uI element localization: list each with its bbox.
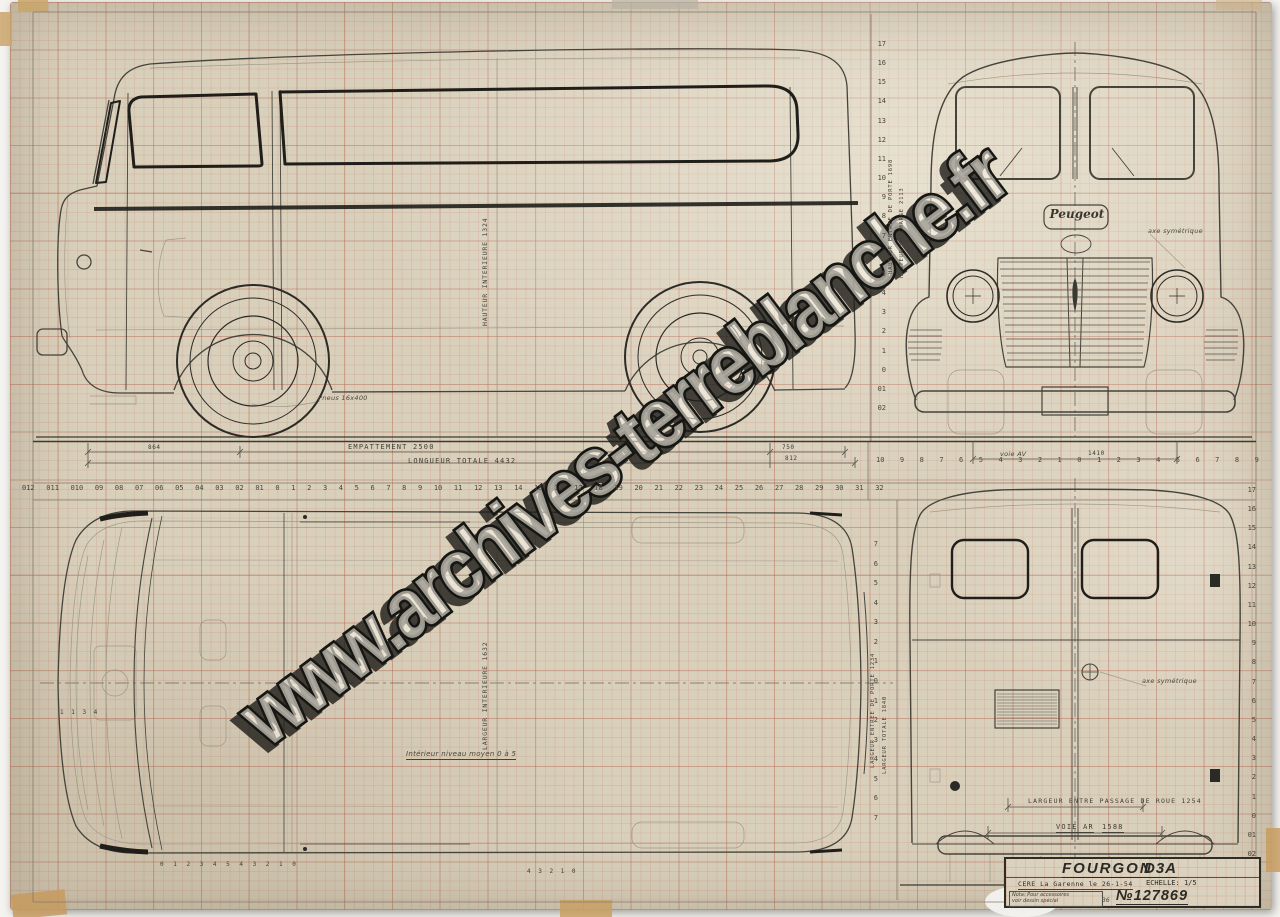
scale-number: 32: [875, 484, 883, 496]
scale-number: 5: [872, 270, 886, 278]
section-marks-b: 4 3 2 1 0: [527, 868, 578, 875]
scale-number: 0: [1242, 812, 1256, 820]
dim-864-label: 864: [148, 444, 161, 451]
scale-number: 03: [215, 484, 223, 496]
scale-number: 1: [291, 484, 295, 496]
scale-number: 0: [275, 484, 279, 496]
scale-number: 1: [1097, 456, 1101, 466]
scale-number: 5: [979, 456, 983, 466]
scale-number: 7: [939, 456, 943, 466]
axe-note-rear: axe symétrique: [1142, 677, 1197, 685]
voie-av-label: voie AV: [1000, 450, 1026, 458]
scale-number: 27: [775, 484, 783, 496]
scale-number: 16: [872, 59, 886, 67]
scale-number: 5: [1176, 456, 1180, 466]
scale-number: 28: [795, 484, 803, 496]
scale-number: 17: [872, 40, 886, 48]
scale-number: 11: [872, 155, 886, 163]
scale-number: 01: [1242, 831, 1256, 839]
scale-number: 16: [1242, 505, 1256, 513]
scale-number: 4: [1242, 735, 1256, 743]
scale-number: 3: [323, 484, 327, 496]
scale-number: 5: [355, 484, 359, 496]
scale-number: 7: [866, 814, 878, 822]
scale-number: 17: [574, 484, 582, 496]
scale-number: 23: [695, 484, 703, 496]
scale-right-columns: 109876543210123456789: [876, 456, 1259, 466]
scale-number: 06: [155, 484, 163, 496]
scale-number: 13: [494, 484, 502, 496]
scale-number: 01: [255, 484, 263, 496]
scale-bottom-rows: 171615141312111098765432100102: [1242, 486, 1256, 858]
scale-number: 2: [872, 327, 886, 335]
scale-number: 25: [735, 484, 743, 496]
drawing-number: №127869: [1116, 888, 1188, 905]
vitrage-note-label: Intérieur niveau moyen 0 à 5: [406, 750, 516, 760]
scale-number: 012: [22, 484, 35, 496]
scale-number: 0: [1077, 456, 1081, 466]
scale-number: 1: [1242, 793, 1256, 801]
scale-number: 17: [1242, 486, 1256, 494]
scale-top-rows: 171615141312111098765432100102: [872, 40, 886, 412]
scale-number: 2: [1117, 456, 1121, 466]
longueur-totale-label: LONGUEUR TOTALE 4432: [408, 457, 516, 465]
scale-number: 8: [920, 456, 924, 466]
scale-number: 6: [370, 484, 374, 496]
largeur-passage-roue-label: LARGEUR ENTRE PASSAGE DE ROUE 1254: [1028, 797, 1202, 805]
scale-number: 11: [454, 484, 462, 496]
tape-top-right: [1216, 0, 1262, 10]
scale-number: 7: [1215, 456, 1219, 466]
scale-number: 29: [815, 484, 823, 496]
scale-number: 6: [1195, 456, 1199, 466]
scale-number: 9: [418, 484, 422, 496]
scale-number: 6: [866, 560, 878, 568]
scale-number: 8: [402, 484, 406, 496]
scale-number: 30: [835, 484, 843, 496]
scale-number: 31: [855, 484, 863, 496]
scale-number: 3: [1136, 456, 1140, 466]
pneus-label: Pneus 16x400: [318, 394, 368, 402]
scale-number: 14: [1242, 543, 1256, 551]
scale-number: 26: [755, 484, 763, 496]
scale-number: 2: [1242, 773, 1256, 781]
scale-number: 9: [1242, 639, 1256, 647]
scale-number: 4: [872, 289, 886, 297]
scale-number: 9: [872, 193, 886, 201]
scale-number: 1: [872, 347, 886, 355]
scale-number: 8: [872, 212, 886, 220]
scale-number: 12: [474, 484, 482, 496]
largeur-entree-porte-label: LARGEUR ENTREE DE PORTE 1234: [870, 653, 876, 768]
scale-number: 2: [307, 484, 311, 496]
scale-number: 12: [872, 136, 886, 144]
scale-number: 4: [1156, 456, 1160, 466]
number-sign: №: [1116, 888, 1134, 904]
scale-number: 3: [1242, 754, 1256, 762]
scale-number: 5: [1242, 716, 1256, 724]
hauteur-entree-porte-label: HAUTEUR ENTREE DE PORTE 1698: [888, 159, 894, 274]
scale-number: 24: [715, 484, 723, 496]
scale-number: 10: [1242, 620, 1256, 628]
scale-note: ECHELLE: 1/5: [1146, 879, 1197, 887]
scale-value: 1/5: [1184, 879, 1197, 887]
scale-number: 01: [872, 385, 886, 393]
scale-number: 5: [866, 775, 878, 783]
hauteur-interieure-label: HAUTEUR INTERIEURE 1324: [481, 218, 489, 326]
title-block-row1: FOURGON D3A: [1006, 859, 1259, 878]
drawing-title: FOURGON: [1062, 860, 1153, 878]
scale-number: 10: [872, 174, 886, 182]
scale-number: 7: [1242, 678, 1256, 686]
voie-ar-value: 1588: [1102, 823, 1124, 833]
scale-number: 6: [1242, 697, 1256, 705]
title-block: FOURGON D3A CERE La Garenne le 26-1-54 E…: [1004, 857, 1261, 908]
scale-number: 7: [872, 232, 886, 240]
tape-bottom-left: [11, 889, 67, 917]
scale-number: 10: [434, 484, 442, 496]
scale-number: 6: [959, 456, 963, 466]
scale-number: 09: [95, 484, 103, 496]
scale-number: 08: [115, 484, 123, 496]
scale-number: 15: [872, 78, 886, 86]
scale-number: 011: [46, 484, 59, 496]
largeur-totale-label: LARGEUR TOTALE 1840: [882, 696, 888, 774]
dim-812-label: 812: [785, 455, 798, 462]
tape-bottom-center: [560, 900, 612, 917]
scale-number: 12: [1242, 582, 1256, 590]
scale-number: 13: [872, 117, 886, 125]
scale-number: 4: [866, 599, 878, 607]
hauteur-en-charge-label: HAUTEUR EN CHARGE 2113: [899, 188, 905, 278]
scale-number: 9: [900, 456, 904, 466]
scale-number: 07: [135, 484, 143, 496]
scale-number: 8: [1242, 658, 1256, 666]
tape-top-center: [612, 0, 698, 9]
scale-number: 13: [1242, 563, 1256, 571]
peugeot-badge-text: Peugeot: [1048, 207, 1106, 221]
voie-av-value: 1410: [1088, 450, 1105, 457]
scale-number: 02: [235, 484, 243, 496]
scale-number: 4: [339, 484, 343, 496]
scale-number: 2: [1038, 456, 1042, 466]
scale-number: 0: [872, 366, 886, 374]
scale-number: 18: [594, 484, 602, 496]
plan-marks-label: 1 1 3 4: [60, 709, 99, 716]
voie-ar-label: VOIE AR: [1056, 823, 1094, 833]
scale-top-columns: 0120110100908070605040302010123456789101…: [22, 484, 884, 496]
nota-line2: voir dessin spécial: [1012, 898, 1058, 904]
scale-number: 14: [514, 484, 522, 496]
tape-left-edge: [0, 12, 12, 46]
dim-750-label: 750: [782, 444, 795, 451]
scale-label: ECHELLE:: [1146, 879, 1180, 887]
axe-note-front: axe symétrique: [1148, 227, 1203, 235]
scale-number: 15: [1242, 524, 1256, 532]
scale-number: 7: [866, 540, 878, 548]
scale-number: 19: [614, 484, 622, 496]
scale-number: 15: [534, 484, 542, 496]
scale-number: 9: [1255, 456, 1259, 466]
largeur-interieure-label: LARGEUR INTERIEURE 1632: [481, 642, 489, 750]
scale-number: 21: [655, 484, 663, 496]
scale-number: 010: [71, 484, 84, 496]
scale-number: 8: [1235, 456, 1239, 466]
number-value: 127869: [1134, 888, 1188, 904]
scale-number: 16: [554, 484, 562, 496]
scale-number: 20: [634, 484, 642, 496]
scale-number: 14: [872, 97, 886, 105]
scale-number: 11: [1242, 601, 1256, 609]
scale-number: 1: [1058, 456, 1062, 466]
scale-number: 7: [386, 484, 390, 496]
number-note: 36: [1102, 897, 1110, 904]
scale-number: 6: [872, 251, 886, 259]
scale-number: 05: [175, 484, 183, 496]
scale-number: 2: [866, 638, 878, 646]
drawing-model: D3A: [1144, 860, 1177, 878]
scale-number: 22: [675, 484, 683, 496]
scale-number: 5: [866, 579, 878, 587]
scale-number: 04: [195, 484, 203, 496]
scale-number: 3: [866, 618, 878, 626]
scale-number: 3: [872, 308, 886, 316]
scale-number: 6: [866, 794, 878, 802]
scale-number: 10: [876, 456, 884, 466]
section-marks-a: 0 1 2 3 4 5 4 3 2 1 0: [160, 861, 299, 868]
scale-number: 02: [872, 404, 886, 412]
empattement-label: EMPATTEMENT 2500: [348, 443, 435, 451]
nota-box: Nota: Pour accessoires voir dessin spéci…: [1009, 891, 1103, 907]
tape-top-left: [18, 0, 48, 12]
scanned-blueprint-sheet: www.archives-terreblanche.fr www.archive…: [0, 0, 1280, 917]
tape-right-edge: [1266, 828, 1280, 872]
